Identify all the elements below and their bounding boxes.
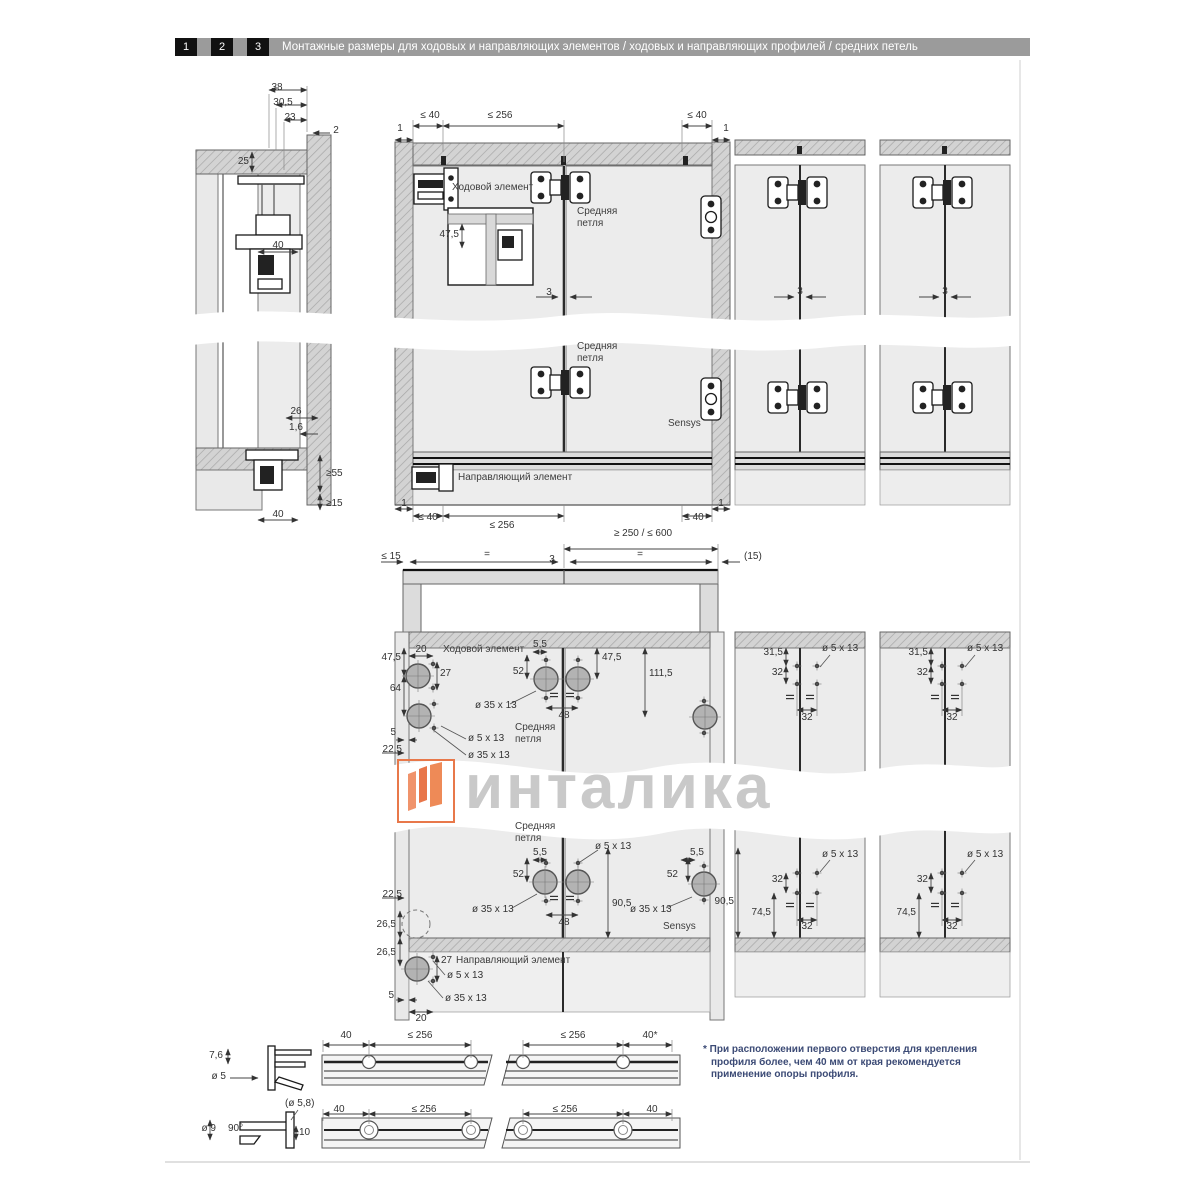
dim-23: 23 bbox=[284, 112, 295, 124]
dim-le256: ≤ 256 bbox=[490, 520, 515, 532]
dim-le256: ≤ 256 bbox=[553, 1104, 578, 1116]
dim-range: ≥ 250 / ≤ 600 bbox=[614, 528, 672, 540]
dim-26: 26 bbox=[290, 406, 301, 418]
dim-48: 48 bbox=[558, 917, 569, 929]
dim-31-5: 31,5 bbox=[764, 647, 783, 659]
dim-31-5: 31,5 bbox=[909, 647, 928, 659]
dim-ge55: ≥55 bbox=[326, 468, 343, 480]
dim-1: 1 bbox=[401, 498, 407, 510]
dim-le256: ≤ 256 bbox=[408, 1030, 433, 1042]
dim-eq: = bbox=[484, 549, 490, 561]
dim-47-5: 47,5 bbox=[440, 229, 459, 241]
dim-27: 27 bbox=[440, 668, 451, 680]
dim-le40: ≤ 40 bbox=[418, 512, 437, 524]
dim-5: 5 bbox=[388, 990, 394, 1002]
dim-3: 3 bbox=[546, 287, 552, 299]
dim-27: 27 bbox=[441, 955, 452, 967]
dim-15: (15) bbox=[744, 551, 762, 563]
dim-3: 3 bbox=[549, 554, 555, 566]
dim-32: 32 bbox=[917, 874, 928, 886]
label-running-element: Ходовой элемент bbox=[452, 182, 533, 194]
catalog-page: 1 2 3 Монтажные размеры для ходовых и на… bbox=[0, 0, 1200, 1200]
dim-hole5: ø 5 x 13 bbox=[822, 643, 858, 655]
label-middle-hinge: Средняя петля bbox=[515, 821, 555, 845]
label-running-element: Ходовой элемент bbox=[443, 644, 524, 656]
dim-hole35: ø 35 x 13 bbox=[468, 750, 510, 762]
dim-hole5: ø 5 x 13 bbox=[822, 849, 858, 861]
dim-hole35: ø 35 x 13 bbox=[475, 700, 517, 712]
dim-40star: 40* bbox=[642, 1030, 657, 1042]
dim-38: 38 bbox=[271, 82, 282, 94]
dim-22-5: 22,5 bbox=[383, 889, 402, 901]
plan-view bbox=[403, 570, 718, 632]
dim-1: 1 bbox=[718, 498, 724, 510]
dim-40: 40 bbox=[272, 509, 283, 521]
dim-32: 32 bbox=[946, 921, 957, 933]
dim-le256: ≤ 256 bbox=[412, 1104, 437, 1116]
dim-eq: = bbox=[637, 549, 643, 561]
dim-52: 52 bbox=[513, 666, 524, 678]
dim-dia5: ø 5 bbox=[212, 1071, 226, 1083]
dim-5-5: 5,5 bbox=[690, 847, 704, 859]
dim-le256: ≤ 256 bbox=[488, 110, 513, 122]
dim-1: 1 bbox=[723, 123, 729, 135]
dim-hole5: ø 5 x 13 bbox=[595, 841, 631, 853]
dim-25: 25 bbox=[238, 156, 249, 168]
dim-90-5: 90,5 bbox=[612, 898, 631, 910]
dim-90-5: 90,5 bbox=[715, 896, 734, 908]
dim-5-5: 5,5 bbox=[533, 639, 547, 651]
dim-hole5: ø 5 x 13 bbox=[468, 733, 504, 745]
label-sensys: Sensys bbox=[668, 418, 701, 430]
footnote: * При расположении первого отверстия для… bbox=[703, 1044, 983, 1082]
dim-40: 40 bbox=[272, 240, 283, 252]
dim-hole35: ø 35 x 13 bbox=[630, 904, 672, 916]
dim-32: 32 bbox=[801, 921, 812, 933]
dim-dia9: ø 9 bbox=[202, 1123, 216, 1135]
dim-90deg: 90° bbox=[228, 1123, 243, 1135]
dim-le40: ≤ 40 bbox=[420, 110, 439, 122]
dim-32: 32 bbox=[772, 667, 783, 679]
dim-48: 48 bbox=[558, 710, 569, 722]
dim-7-6: 7,6 bbox=[209, 1050, 223, 1062]
dim-20: 20 bbox=[415, 644, 426, 656]
dim-32: 32 bbox=[917, 667, 928, 679]
label-guide-element: Направляющий элемент bbox=[456, 955, 570, 967]
dim-le15: ≤ 15 bbox=[381, 551, 400, 563]
dim-52: 52 bbox=[667, 869, 678, 881]
label-middle-hinge: Средняя петля bbox=[577, 341, 617, 365]
dim-32: 32 bbox=[772, 874, 783, 886]
technical-drawing bbox=[0, 0, 1200, 1200]
dim-40: 40 bbox=[340, 1030, 351, 1042]
dim-ge15: ≥15 bbox=[326, 498, 343, 510]
dim-74-5: 74,5 bbox=[897, 907, 916, 919]
dim-26-5: 26,5 bbox=[377, 919, 396, 931]
dim-hole5: ø 5 x 13 bbox=[447, 970, 483, 982]
dim-10: 10 bbox=[299, 1127, 310, 1139]
dim-30-5: 30,5 bbox=[273, 97, 292, 109]
dim-26-5: 26,5 bbox=[377, 947, 396, 959]
watermark-logo bbox=[396, 754, 458, 831]
dim-3: 3 bbox=[797, 286, 803, 298]
footnote-text: При расположении первого отверстия для к… bbox=[707, 1044, 977, 1080]
dim-5: 5 bbox=[390, 727, 396, 739]
dim-dia5-8: (ø 5,8) bbox=[285, 1098, 314, 1110]
dim-hole5: ø 5 x 13 bbox=[967, 643, 1003, 655]
dim-22-5: 22,5 bbox=[383, 744, 402, 756]
dim-1: 1 bbox=[397, 123, 403, 135]
label-guide-element: Направляющий элемент bbox=[458, 472, 572, 484]
dim-hole35: ø 35 x 13 bbox=[472, 904, 514, 916]
dim-111-5: 111,5 bbox=[649, 668, 673, 680]
dim-47-5: 47,5 bbox=[602, 652, 621, 664]
dim-32: 32 bbox=[801, 712, 812, 724]
dim-le40: ≤ 40 bbox=[687, 110, 706, 122]
dim-40: 40 bbox=[646, 1104, 657, 1116]
dim-hole5: ø 5 x 13 bbox=[967, 849, 1003, 861]
watermark-text: инталика bbox=[465, 752, 772, 823]
dim-64: 64 bbox=[390, 683, 401, 695]
profile-sections bbox=[210, 1040, 680, 1148]
dim-le256: ≤ 256 bbox=[561, 1030, 586, 1042]
dim-74-5: 74,5 bbox=[752, 907, 771, 919]
dim-hole35: ø 35 x 13 bbox=[445, 993, 487, 1005]
dim-52: 52 bbox=[513, 869, 524, 881]
dim-20: 20 bbox=[415, 1013, 426, 1025]
dim-32: 32 bbox=[946, 712, 957, 724]
label-middle-hinge: Средняя петля bbox=[577, 206, 617, 230]
dim-5-5: 5,5 bbox=[533, 847, 547, 859]
dim-3: 3 bbox=[942, 286, 948, 298]
dim-1-6: 1,6 bbox=[289, 422, 303, 434]
dim-47-5: 47,5 bbox=[382, 652, 401, 664]
dim-2: 2 bbox=[333, 125, 339, 137]
label-sensys: Sensys bbox=[663, 921, 696, 933]
label-middle-hinge: Средняя петля bbox=[515, 722, 555, 746]
dim-40: 40 bbox=[333, 1104, 344, 1116]
dim-le40: ≤ 40 bbox=[684, 512, 703, 524]
